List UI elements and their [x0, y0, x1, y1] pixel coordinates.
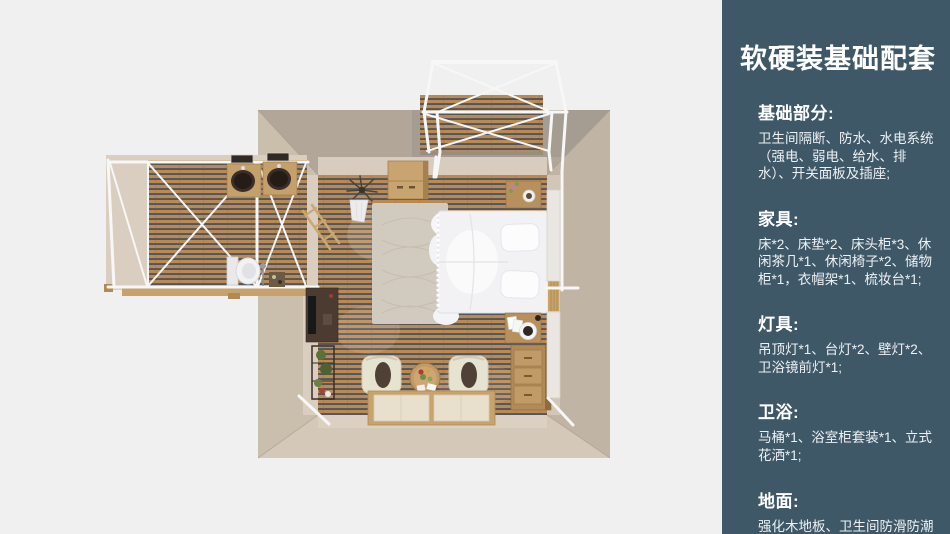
section-furniture-body: 床*2、床垫*2、床头柜*3、休闲茶几*1、休闲椅子*2、储物柜*1，衣帽架*1…: [758, 236, 936, 289]
section-lighting: 灯具: 吊顶灯*1、台灯*2、壁灯*2、卫浴镜前灯*1;: [758, 310, 936, 376]
leisure-chair-right: [449, 356, 488, 394]
section-basics-body: 卫生间隔断、防水、水电系统（强电、弱电、给水、排水）、开关面板及插座;: [758, 130, 936, 183]
section-flooring-heading: 地面:: [758, 487, 936, 512]
section-flooring-body: 强化木地板、卫生间防滑防潮石塑板;: [758, 518, 936, 534]
slide: 软硬装基础配套 基础部分: 卫生间隔断、防水、水电系统（强电、弱电、给水、排水）…: [0, 0, 950, 534]
section-basics-heading: 基础部分:: [758, 99, 936, 124]
section-bathroom: 卫浴: 马桶*1、浴室柜套装*1、立式花洒*1;: [758, 398, 936, 464]
desk: [306, 288, 338, 342]
toilet: [227, 257, 260, 285]
section-lighting-heading: 灯具:: [758, 310, 936, 335]
section-basics: 基础部分: 卫生间隔断、防水、水电系统（强电、弱电、给水、排水）、开关面板及插座…: [758, 99, 936, 183]
leisure-chair-left: [362, 356, 401, 394]
floorplan-render: [0, 0, 722, 534]
dresser: [511, 345, 551, 410]
section-lighting-body: 吊顶灯*1、台灯*2、壁灯*2、卫浴镜前灯*1;: [758, 341, 936, 376]
section-flooring: 地面: 强化木地板、卫生间防滑防潮石塑板;: [758, 487, 936, 534]
tea-table: [410, 363, 440, 393]
floorplan-svg: [0, 0, 722, 534]
storage-cabinet: [388, 161, 428, 199]
panel-title: 软硬装基础配套: [740, 44, 936, 75]
section-bathroom-heading: 卫浴:: [758, 398, 936, 423]
nightstand-top: [506, 181, 541, 208]
section-furniture: 家具: 床*2、床垫*2、床头柜*3、休闲茶几*1、休闲椅子*2、储物柜*1，衣…: [758, 205, 936, 289]
info-panel: 软硬装基础配套 基础部分: 卫生间隔断、防水、水电系统（强电、弱电、给水、排水）…: [722, 0, 950, 534]
section-furniture-heading: 家具:: [758, 205, 936, 230]
bathroom-wing: [104, 153, 318, 299]
floor-mats: [368, 391, 495, 425]
section-bathroom-body: 马桶*1、浴室柜套装*1、立式花洒*1;: [758, 429, 936, 464]
nightstand-bottom: [505, 313, 541, 343]
